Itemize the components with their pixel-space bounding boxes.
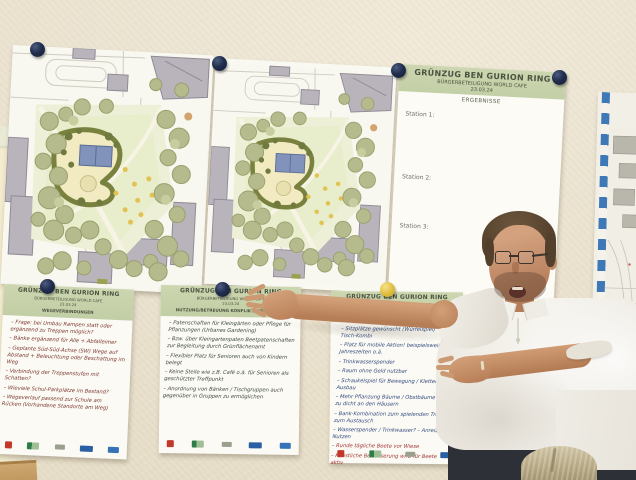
- park-plan-drawing: [204, 58, 397, 293]
- logo-blue: [80, 445, 93, 452]
- handwritten-note: Keine Stelle wie z.B. Café o.ä. für Seni…: [164, 369, 293, 385]
- push-pin: [215, 282, 230, 297]
- push-pin-yellow: [380, 282, 395, 297]
- flipchart-topic: NUTZUNG/BETREUUNG KONFLIKTVERMEIDUNG: [163, 307, 299, 314]
- results-poster: GRÜNZUG BEN GURION RING BÜRGERBETEILIGUN…: [387, 64, 566, 318]
- photo-meeting-room-scene: GRÜNZUG BEN GURION RING BÜRGERBETEILIGUN…: [0, 0, 636, 480]
- handwritten-note: Geplante Süd-Süd-Achse (SW) Wege auf Abs…: [6, 345, 126, 371]
- polo-placket: [517, 318, 519, 344]
- logo-row: [167, 439, 291, 450]
- logo-green: [191, 440, 203, 447]
- push-pin: [40, 279, 55, 294]
- handwritten-notes: Frage: bei Umbau Rampen statt oder ergän…: [0, 315, 136, 413]
- polo-button: [516, 338, 520, 342]
- handwritten-notes: Sitzplätze gewünscht (Würfelspiel) = Ban…: [324, 322, 468, 468]
- handwritten-notes: Patenschaften für Kleingärten oder Pfleg…: [156, 316, 303, 402]
- logo-green: [27, 442, 39, 450]
- station-label: Station 2:: [402, 173, 552, 188]
- handwritten-note: Patenschaften für Kleingärten oder Pfleg…: [168, 320, 297, 336]
- handwritten-note: Bank-Kombination zum spielenden Treffen …: [333, 411, 454, 426]
- push-pin: [212, 56, 227, 71]
- push-pin: [552, 70, 567, 85]
- handwritten-note: Flexibler Platz für Senioren auch von Ki…: [165, 353, 294, 369]
- flipchart-third: GRÜNZUG BEN GURION RING BÜRGERBETEILIGUN…: [329, 291, 463, 464]
- station-label: Station 3:: [399, 222, 549, 237]
- presenter-right-forearm: [459, 342, 593, 382]
- station-label: Station 1:: [405, 110, 555, 125]
- logo-red: [5, 441, 12, 448]
- park-plan-drawing: [0, 45, 213, 294]
- site-plan-left: [0, 45, 213, 294]
- push-pin: [391, 63, 406, 78]
- handwritten-note: Platz für mobile Aktion! beispielsweise …: [339, 343, 460, 358]
- handwritten-note: Wasserspender / Trinkwasser? – Anreiz zu…: [332, 427, 453, 442]
- logo-gray: [54, 444, 64, 449]
- flipchart-date: 23.03.24: [333, 306, 461, 312]
- wedding-ring: [481, 361, 485, 370]
- site-plan-middle: [204, 58, 397, 293]
- logo-gray: [221, 442, 231, 447]
- logo-blue: [249, 442, 262, 448]
- logo-blue-2: [108, 446, 119, 452]
- flipchart-title: GRÜNZUG BEN GURION RING: [333, 293, 461, 301]
- logo-row: [337, 449, 453, 459]
- handwritten-note: Sitzplätze gewünscht (Würfelspiel) = Ban…: [340, 326, 461, 341]
- flipchart-nutzung: GRÜNZUG BEN GURION RING BÜRGERBETEILIGUN…: [159, 285, 301, 455]
- chair-corner: [0, 460, 38, 480]
- city-map-poster: [589, 92, 636, 449]
- handwritten-note: Anordnung von Bänken / Tischgruppen auch…: [162, 386, 291, 402]
- logo-green: [369, 450, 381, 457]
- logo-blue: [440, 452, 453, 458]
- logo-gray: [406, 452, 416, 457]
- logo-row: [5, 440, 119, 454]
- logo-red: [167, 440, 174, 447]
- handwritten-note: Schaukelspiel für Bewegung / Klettern – …: [336, 378, 457, 393]
- handwritten-note: Mehr Pflanzung Bäume / Obstbäume – nicht…: [335, 394, 456, 409]
- flipchart-wegeverbindungen: GRÜNZUG BEN GURION RING BÜRGERBETEILIGUN…: [0, 284, 134, 460]
- logo-red: [337, 450, 344, 457]
- flipchart-header: GRÜNZUG BEN GURION RING BÜRGERBETEILIGUN…: [161, 285, 301, 318]
- logo-blue-2: [280, 442, 291, 448]
- handwritten-note: Raum ohne Geld nutzbar: [337, 368, 458, 376]
- flipchart-header: GRÜNZUG BEN GURION RING BÜRGERBETEILIGUN…: [331, 291, 463, 323]
- audience-head: [521, 446, 597, 480]
- push-pin: [30, 42, 45, 57]
- handwritten-note: Bzw. über Kleingartenpaten Beetpatenscha…: [167, 337, 296, 353]
- handwritten-note: Wegeverlauf passend zur Schule am Rücken…: [1, 394, 120, 413]
- handwritten-note: Trinkwasserspender: [338, 359, 459, 367]
- station-list: Station 1:Station 2:Station 3:: [391, 100, 564, 238]
